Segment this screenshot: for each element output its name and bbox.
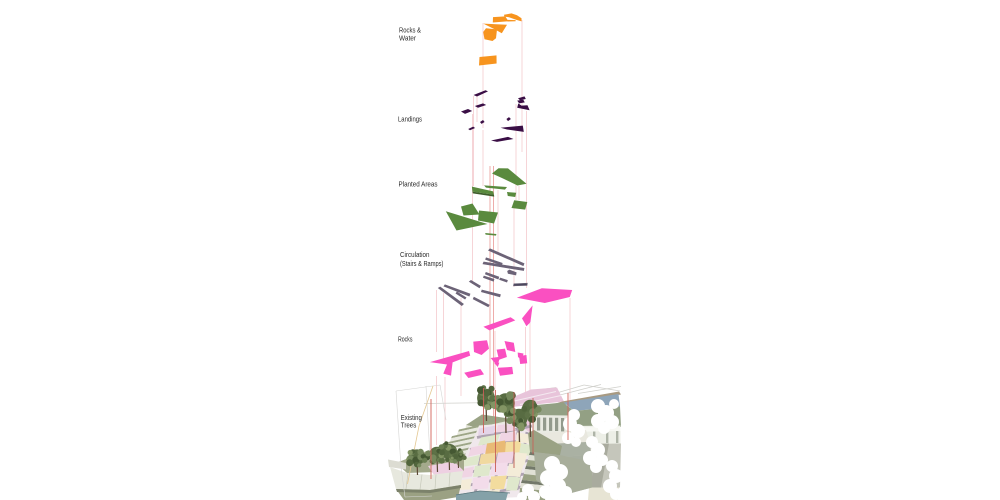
svg-text:(Stairs & Ramps): (Stairs & Ramps) bbox=[400, 260, 443, 268]
svg-text:Rocks &: Rocks & bbox=[399, 27, 421, 35]
svg-text:Landings: Landings bbox=[398, 116, 422, 124]
svg-text:Planted Areas: Planted Areas bbox=[399, 180, 438, 188]
svg-text:Rocks: Rocks bbox=[398, 336, 413, 344]
svg-text:Water: Water bbox=[399, 35, 417, 43]
svg-text:Trees: Trees bbox=[401, 420, 417, 429]
svg-text:Circulation: Circulation bbox=[400, 251, 430, 259]
